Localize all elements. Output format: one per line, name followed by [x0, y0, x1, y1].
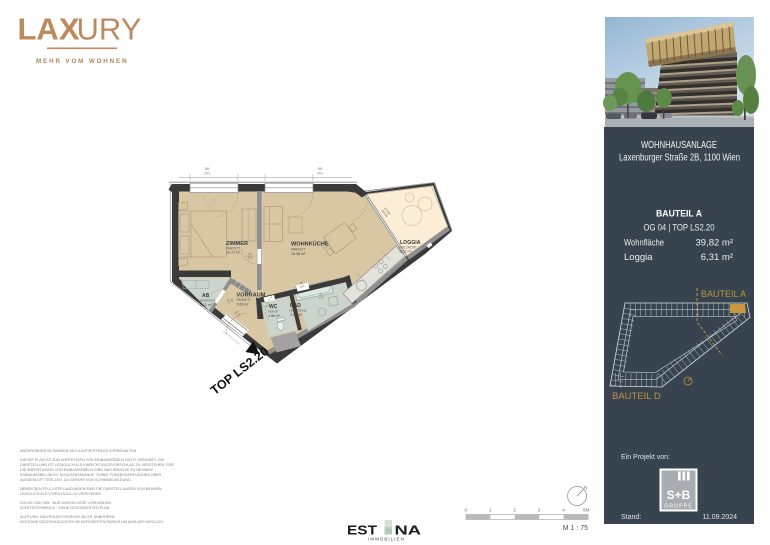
svg-text:AUSSENLUFT STELLEN, DA GEFAHR: AUSSENLUFT STELLEN, DA GEFAHR VON SCHIMM…: [20, 478, 132, 482]
svg-text:LAX: LAX: [18, 12, 80, 47]
svg-text:DIE ANFERTIGUNG VON EINBAUMÖBE: DIE ANFERTIGUNG VON EINBAUMÖBELN SIND NA…: [20, 468, 153, 472]
svg-text:Laxenburger Straße 2B, 1100 Wi: Laxenburger Straße 2B, 1100 Wien: [619, 153, 740, 164]
svg-text:2: 2: [513, 508, 516, 513]
svg-text:Wohnfläche: Wohnfläche: [624, 238, 664, 249]
svg-text:BAUTEIL D: BAUTEIL D: [612, 391, 661, 402]
svg-text:2.21 m²: 2.21 m²: [200, 303, 213, 307]
svg-text:Ein Projekt von:: Ein Projekt von:: [621, 454, 670, 461]
svg-text:3.63 m²: 3.63 m²: [237, 303, 250, 307]
svg-text:N: N: [584, 485, 587, 490]
svg-text:4: 4: [562, 508, 565, 513]
svg-text:NA: NA: [395, 524, 422, 538]
svg-text:88: 88: [205, 167, 209, 171]
svg-text:FEINST.: FEINST.: [268, 310, 279, 314]
svg-text:NEBEN DEN PFLICHTPFLANZUNGEN S: NEBEN DEN PFLICHTPFLANZUNGEN SIND DIE DA…: [20, 487, 162, 491]
svg-text:ACHTUNG: BAUTEILAKTIVIERUNG NI: ACHTUNG: BAUTEILAKTIVIERUNG NICHT ANBOHR…: [20, 515, 115, 519]
svg-text:PARKETT: PARKETT: [291, 248, 306, 252]
svg-text:6,31 m²: 6,31 m²: [701, 252, 733, 263]
svg-text:39,82 m²: 39,82 m²: [696, 238, 734, 249]
svg-text:EINBAUMÖBEL NICHT AN AUSSENWÄN: EINBAUMÖBEL NICHT AN AUSSENWÄNDE, SOWIE …: [20, 473, 162, 477]
svg-text:DARSTELLUNG IST LEDIGLICH ALS: DARSTELLUNG IST LEDIGLICH ALS EINRICHTUN…: [20, 463, 174, 467]
svg-text:WOHNKÜCHE: WOHNKÜCHE: [291, 241, 329, 248]
svg-text:IMMOBILIEN: IMMOBILIEN: [368, 537, 405, 542]
svg-text:BAUTEIL A: BAUTEIL A: [656, 209, 702, 219]
svg-text:URY: URY: [77, 12, 142, 47]
svg-text:3.96 m²: 3.96 m²: [290, 313, 303, 317]
svg-text:ÄNDERUNGEN IM RAHMEN DES KAUFV: ÄNDERUNGEN IM RAHMEN DES KAUFVERTRAGS VO…: [20, 449, 137, 453]
svg-text:DIESER PLAN IST ZUM ANFERTIGEN: DIESER PLAN IST ZUM ANFERTIGEN VON EINBA…: [20, 458, 165, 462]
svg-text:3: 3: [538, 508, 541, 513]
svg-text:M 1 : 75: M 1 : 75: [563, 525, 588, 532]
svg-text:PARKETT: PARKETT: [237, 298, 252, 302]
svg-text:5M: 5M: [583, 508, 590, 513]
svg-text:201: 201: [204, 172, 210, 176]
svg-text:1.86 m²: 1.86 m²: [268, 314, 281, 318]
svg-text:GRUPPE: GRUPPE: [664, 504, 693, 510]
svg-text:FEINSTEINZ.: FEINSTEINZ.: [289, 309, 308, 313]
svg-text:EST: EST: [347, 524, 377, 538]
svg-text:10.72 m²: 10.72 m²: [226, 251, 241, 255]
svg-text:WOHNHAUSANLAGE: WOHNHAUSANLAGE: [641, 140, 717, 151]
svg-text:1: 1: [489, 508, 492, 513]
svg-text:MONTAGE DECKENLEUCHTEN IM DEFI: MONTAGE DECKENLEUCHTEN IM DEFINIERTEN RA…: [20, 520, 163, 524]
svg-text:FEINSTEINZ.: FEINSTEINZ.: [198, 299, 217, 303]
svg-text:BAUTEIL A: BAUTEIL A: [701, 289, 746, 299]
svg-text:S+B: S+B: [667, 488, 691, 502]
svg-text:MEHR VOM WOHNEN: MEHR VOM WOHNEN: [36, 58, 128, 65]
svg-text:88: 88: [318, 167, 322, 171]
svg-text:Loggia: Loggia: [624, 252, 653, 263]
svg-text:18.38 m²: 18.38 m²: [291, 252, 306, 256]
svg-text:0: 0: [465, 508, 468, 513]
svg-text:OG 04 | TOP LS2.20: OG 04 | TOP LS2.20: [644, 223, 715, 234]
svg-text:ELEKTROSYMBOLE : SIEHE GESONDE: ELEKTROSYMBOLE : SIEHE GESONDERTEN PLAN: [20, 506, 110, 510]
svg-text:Stand:: Stand:: [621, 514, 641, 521]
svg-text:LEDIGLICH ALS VORSCHLAG ZU VER: LEDIGLICH ALS VORSCHLAG ZU VERSTEHEN.: [20, 492, 102, 496]
svg-text:6.31 m²: 6.31 m²: [400, 249, 413, 253]
svg-text:KÜCHE UND WM : NUR ANSCHLÜSSE: KÜCHE UND WM : NUR ANSCHLÜSSE VORHANDEN: [20, 501, 111, 505]
svg-text:11.09.2024: 11.09.2024: [702, 514, 737, 521]
svg-text:201: 201: [317, 172, 323, 176]
